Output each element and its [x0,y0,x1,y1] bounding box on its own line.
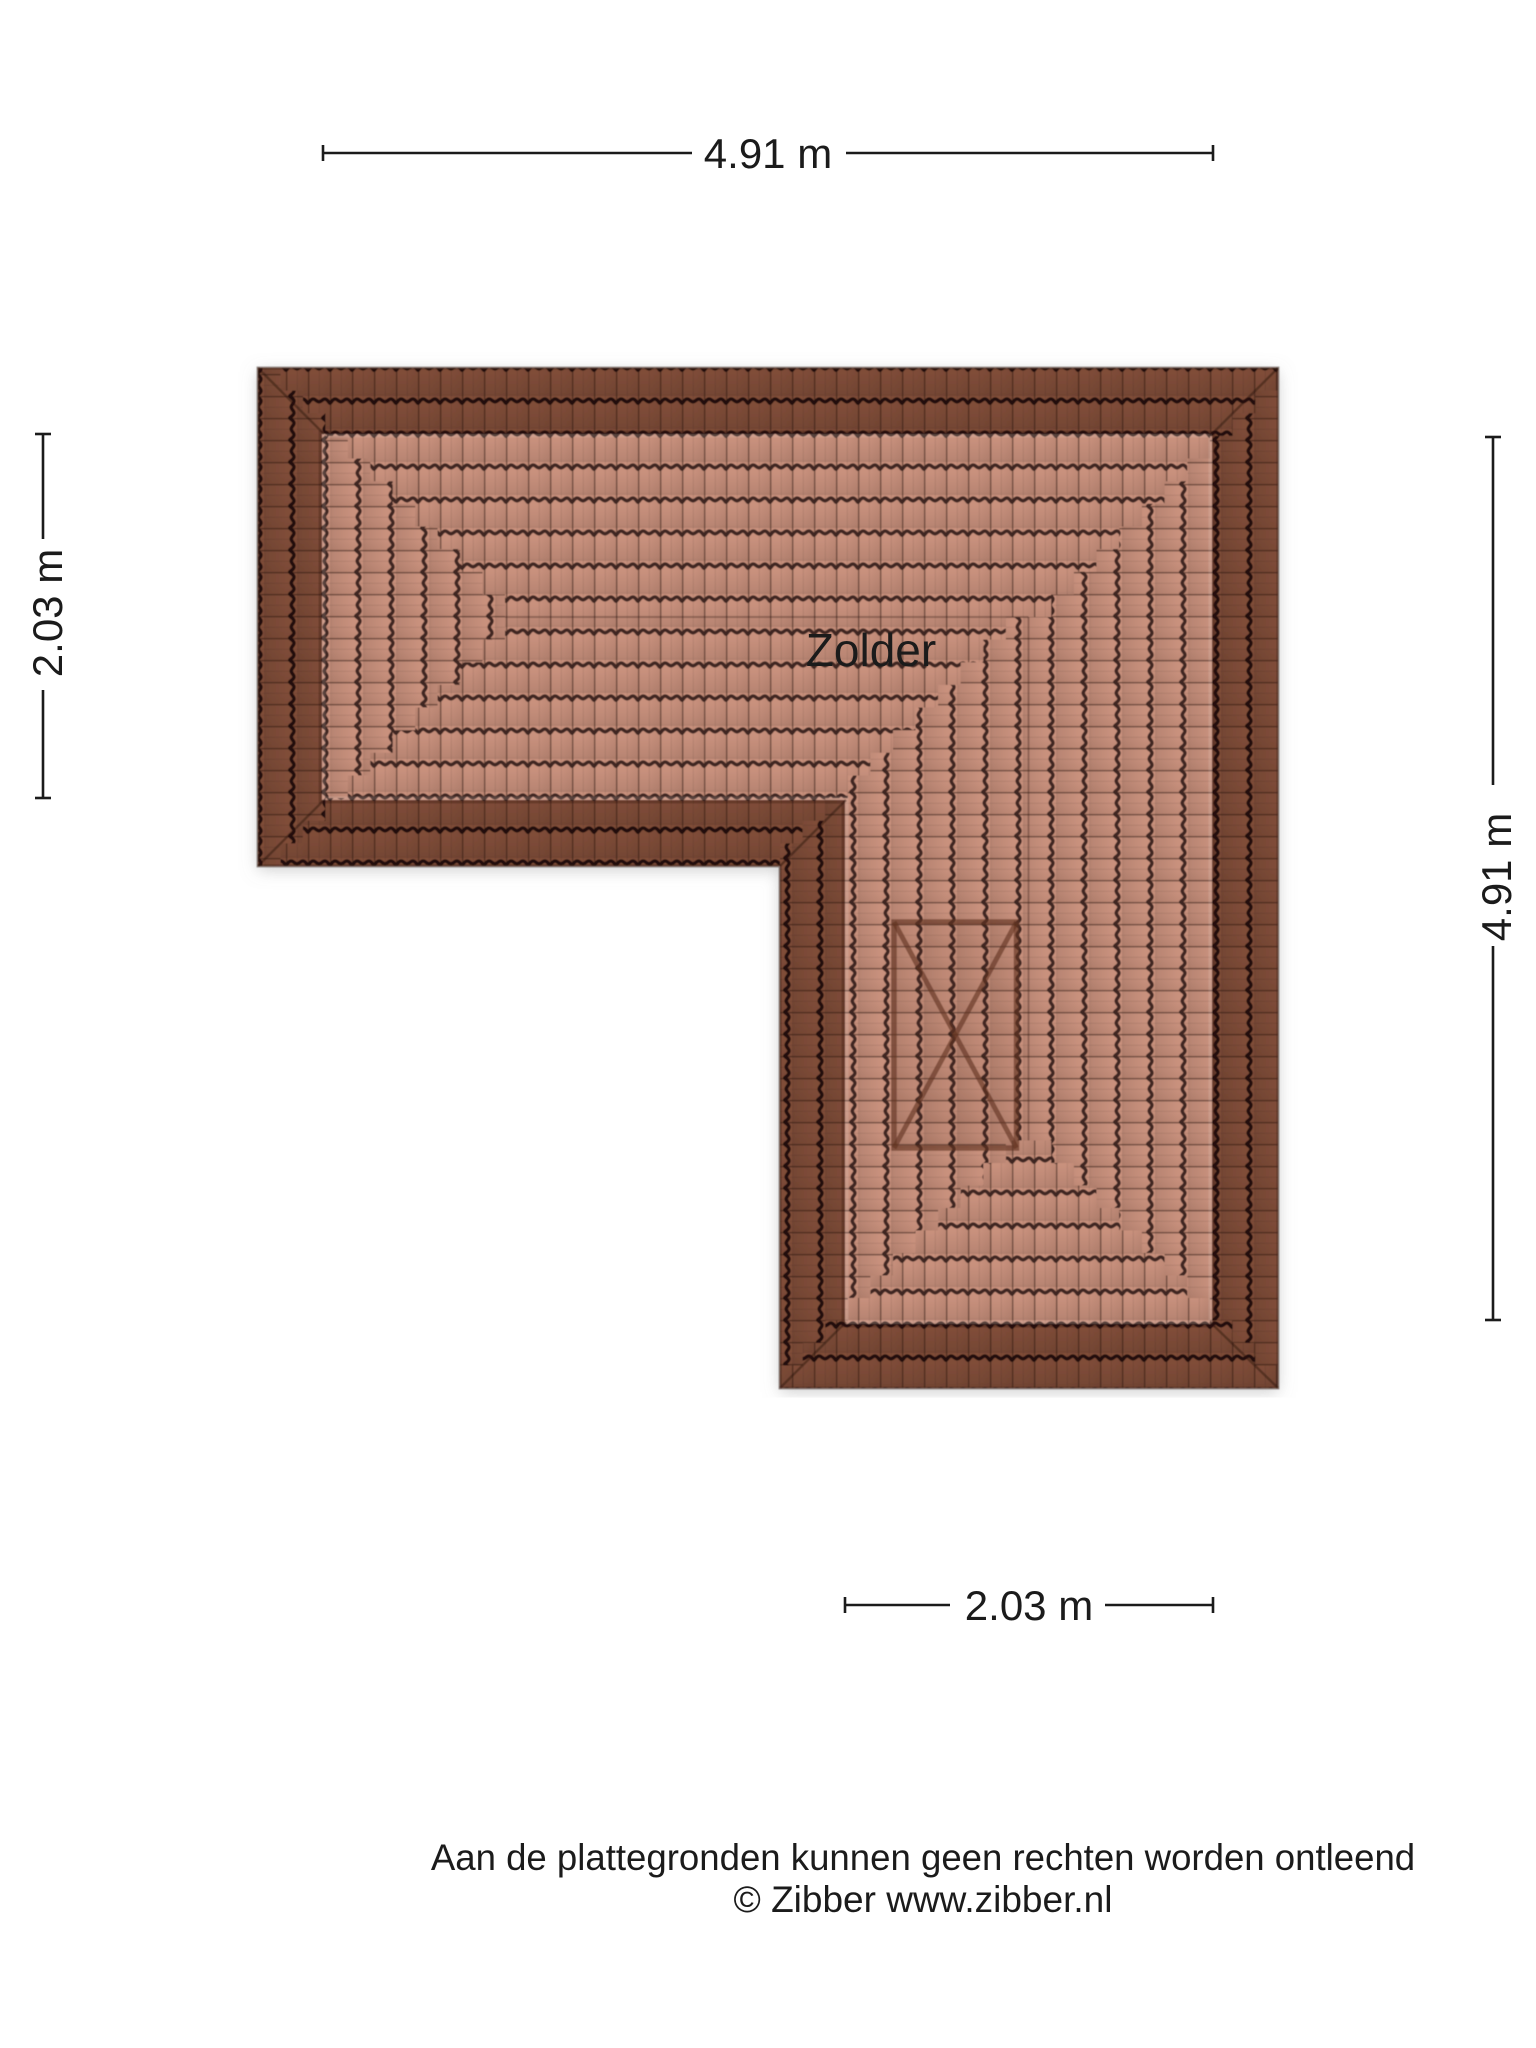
svg-text:Aan de plattegronden kunnen ge: Aan de plattegronden kunnen geen rechten… [431,1837,1415,1878]
svg-text:2.03 m: 2.03 m [24,549,71,677]
svg-text:4.91 m: 4.91 m [704,130,832,177]
svg-text:2.03 m: 2.03 m [965,1582,1093,1629]
svg-text:© Zibber www.zibber.nl: © Zibber www.zibber.nl [734,1879,1113,1920]
svg-text:Zolder: Zolder [806,624,936,676]
svg-text:4.91 m: 4.91 m [1473,813,1520,941]
